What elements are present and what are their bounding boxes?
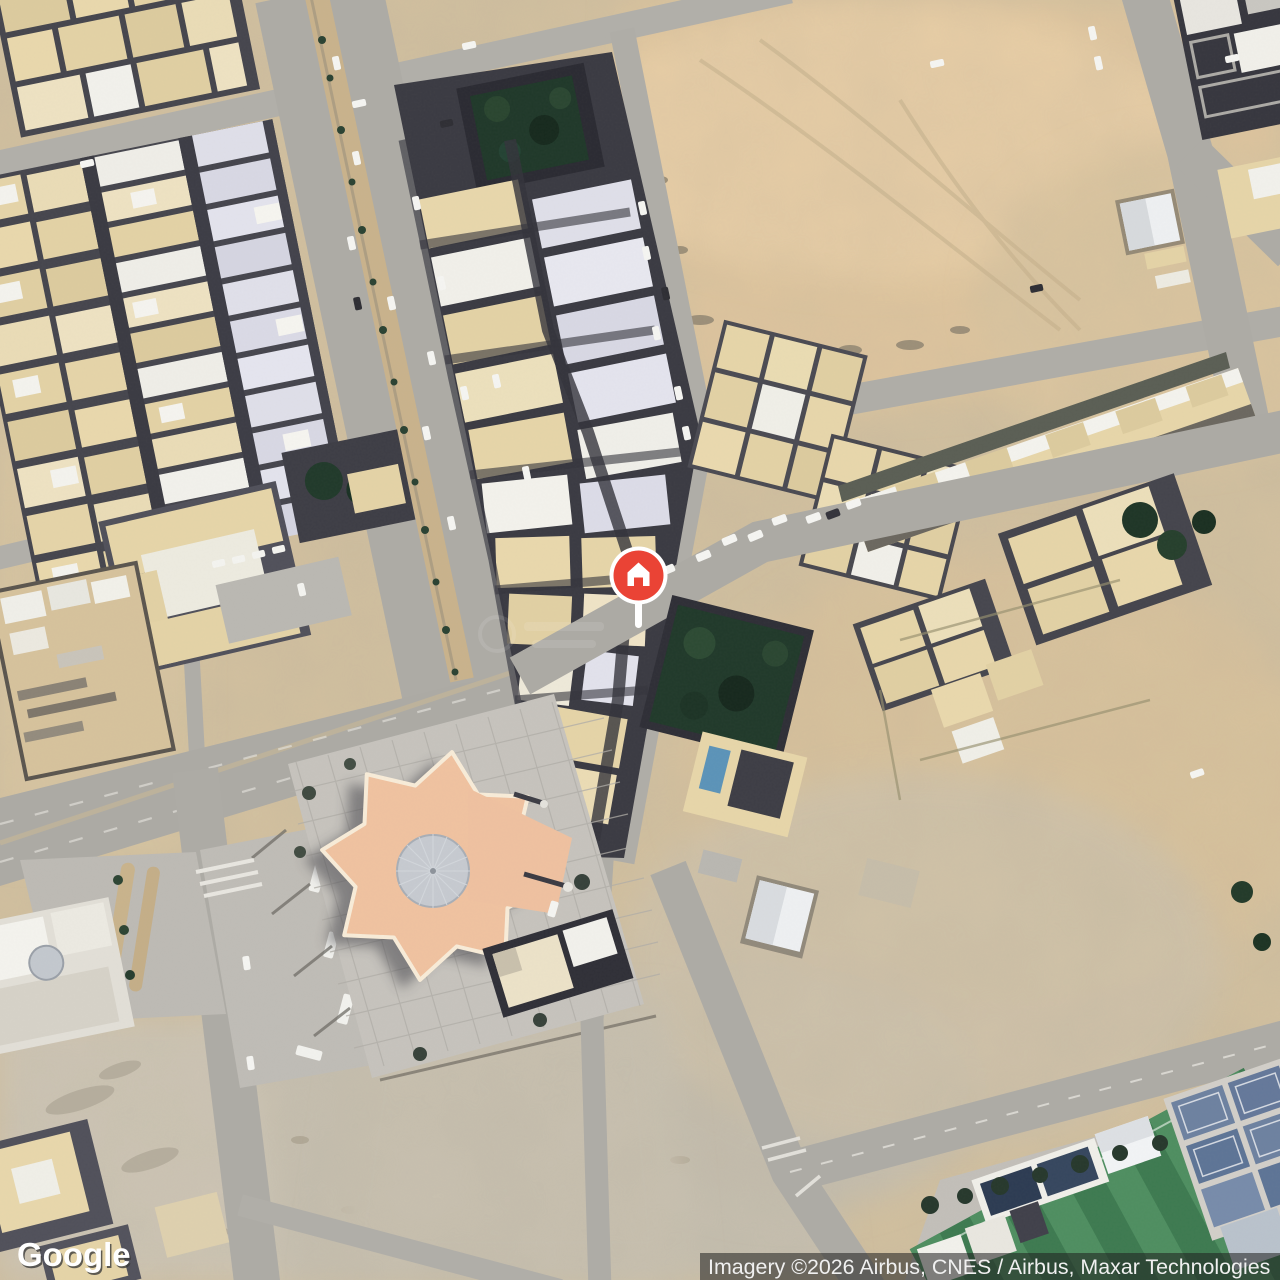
svg-text:Google: Google — [17, 1236, 131, 1273]
svg-text:Imagery ©2026 Airbus, CNES / A: Imagery ©2026 Airbus, CNES / Airbus, Max… — [708, 1255, 1270, 1279]
